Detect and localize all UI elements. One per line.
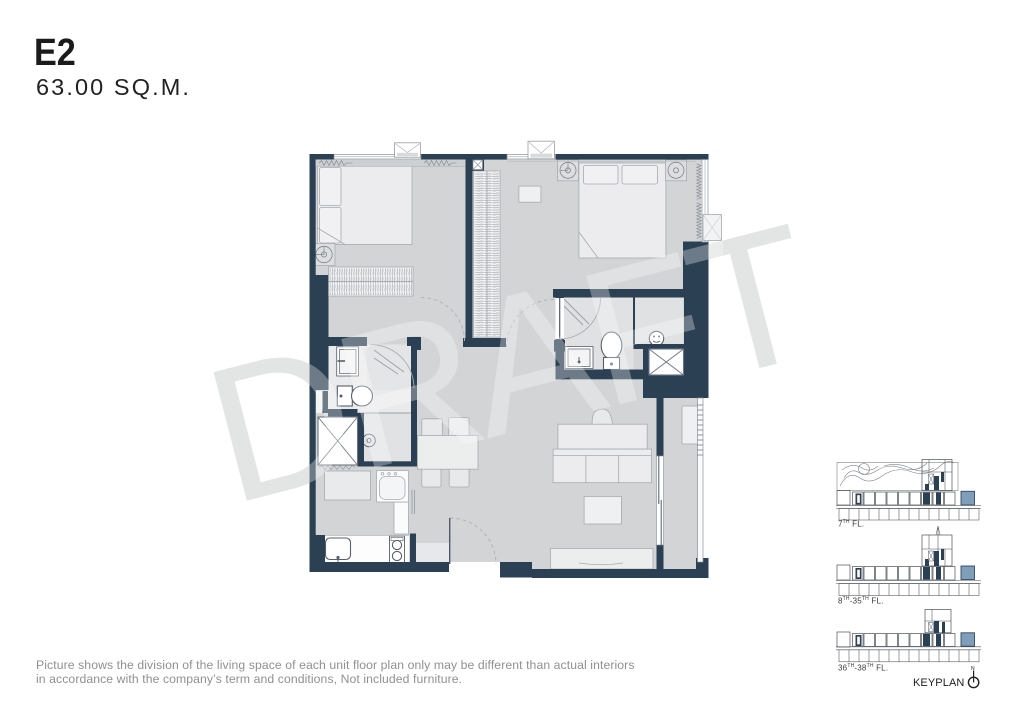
svg-text:N: N (971, 666, 975, 672)
